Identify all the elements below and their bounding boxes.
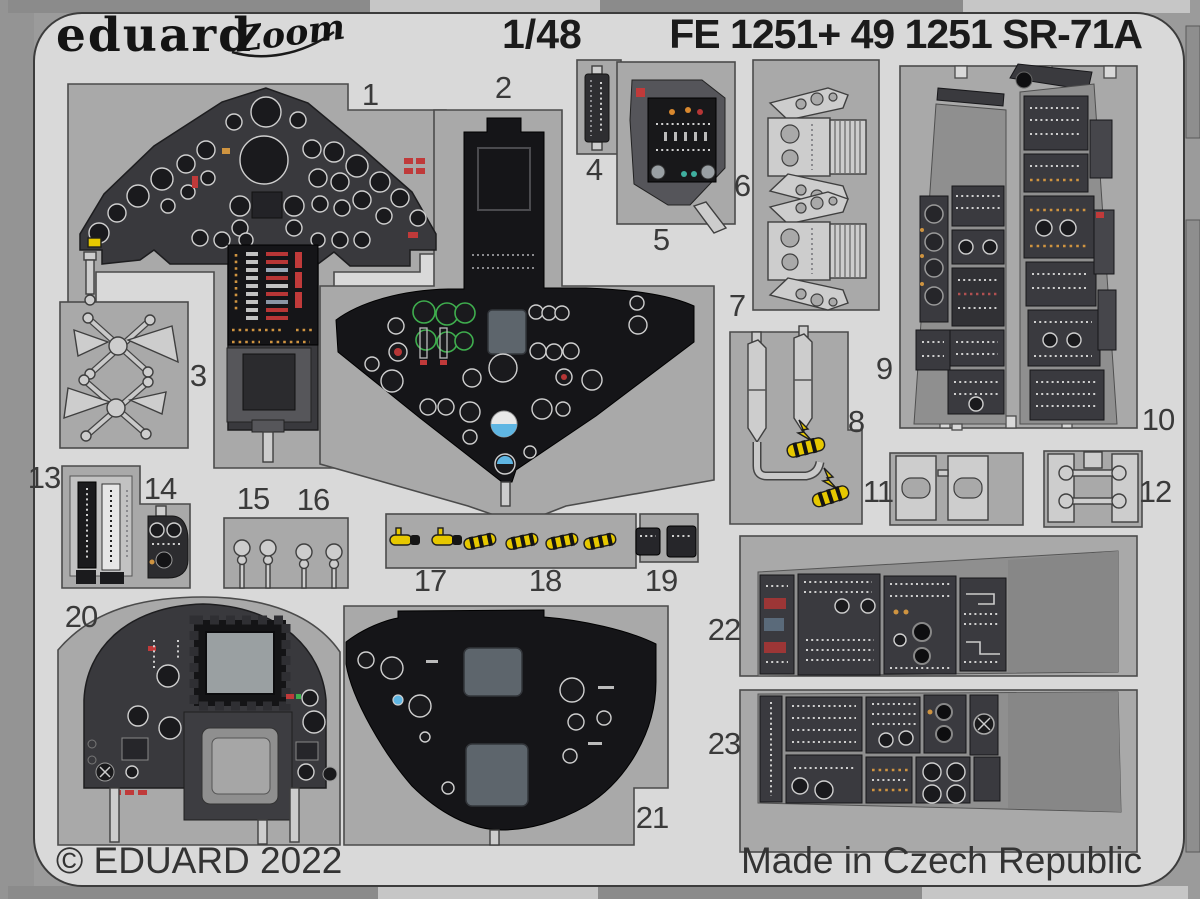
part-label-16: 16 (297, 482, 329, 518)
part-label-10: 10 (1142, 402, 1174, 438)
copyright-text: © EDUARD 2022 (56, 842, 342, 879)
part-label-13: 13 (28, 460, 60, 496)
part-label-20: 20 (65, 599, 97, 635)
product-title: FE 1251+ 49 1251 SR-71A (669, 14, 1142, 55)
part-label-22: 22 (708, 612, 740, 648)
part-label-4: 4 (586, 152, 602, 188)
part-4-placard-strip (585, 66, 609, 150)
part-label-23: 23 (708, 726, 740, 762)
fret-drawing (0, 0, 1200, 899)
part-label-3: 3 (190, 358, 206, 394)
part-22-console (758, 551, 1118, 676)
part-label-1: 1 (362, 77, 378, 113)
part-23-console (758, 692, 1121, 812)
part-label-9: 9 (876, 351, 892, 387)
etched-fret-scan: eduard Zoom 1/48 FE 1251+ 49 1251 SR-71A… (0, 0, 1200, 899)
part-label-6: 6 (734, 168, 750, 204)
eduard-logo: eduard (56, 12, 253, 59)
part-label-8: 8 (848, 404, 864, 440)
console-label-rows (246, 252, 288, 320)
part-label-5: 5 (653, 222, 669, 258)
scale-text: 1/48 (502, 14, 582, 55)
part-label-2: 2 (495, 70, 511, 106)
part-13-scale-strips (70, 476, 132, 584)
part-label-17: 17 (414, 563, 446, 599)
part-label-18: 18 (529, 563, 561, 599)
part-label-14: 14 (144, 471, 176, 507)
part-label-19: 19 (645, 563, 677, 599)
part-label-12: 12 (1139, 474, 1171, 510)
part-label-7: 7 (729, 288, 745, 324)
part-label-15: 15 (237, 481, 269, 517)
made-in-text: Made in Czech Republic (741, 842, 1142, 879)
part-label-21: 21 (636, 800, 668, 836)
part-label-11: 11 (863, 474, 893, 510)
